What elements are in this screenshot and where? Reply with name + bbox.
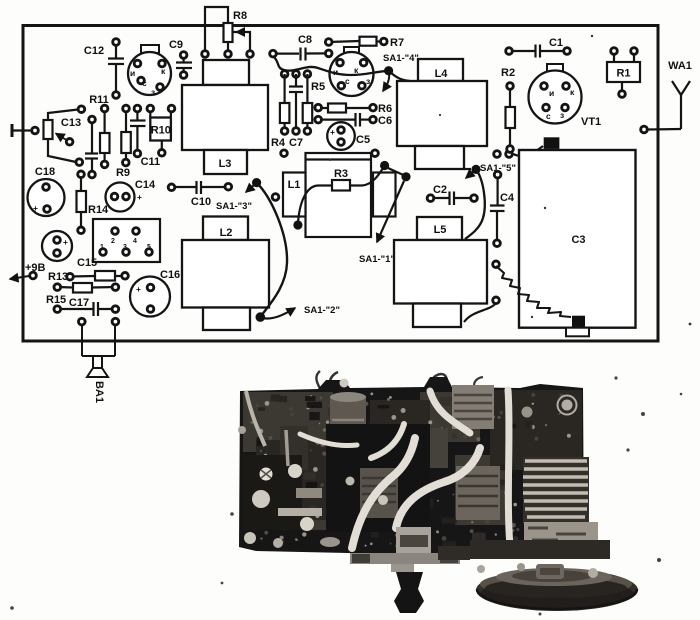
svg-text:R1: R1 bbox=[616, 68, 630, 80]
svg-text:C16: C16 bbox=[160, 269, 180, 281]
svg-text:и: и bbox=[130, 68, 135, 78]
svg-text:VT1: VT1 bbox=[581, 116, 601, 128]
svg-text:C7: C7 bbox=[289, 137, 303, 149]
svg-text:SA1-"1": SA1-"1" bbox=[359, 254, 395, 265]
svg-text:L2: L2 bbox=[220, 227, 233, 239]
svg-text:R15: R15 bbox=[46, 294, 66, 306]
svg-text:C13: C13 bbox=[61, 117, 81, 129]
svg-text:C8: C8 bbox=[298, 34, 312, 46]
svg-text:к: к bbox=[570, 87, 575, 97]
svg-text:4: 4 bbox=[133, 238, 137, 245]
svg-text:R10: R10 bbox=[151, 125, 171, 137]
svg-text:з: з bbox=[560, 110, 564, 120]
svg-text:L1: L1 bbox=[288, 179, 301, 191]
svg-text:BA1: BA1 bbox=[93, 381, 105, 403]
svg-text:R4: R4 bbox=[271, 137, 286, 149]
svg-text:C14: C14 bbox=[135, 179, 156, 191]
svg-text:C1: C1 bbox=[549, 37, 563, 49]
svg-text:5: 5 bbox=[147, 244, 151, 251]
svg-text:+: + bbox=[330, 127, 335, 137]
svg-text:C11: C11 bbox=[141, 156, 161, 168]
svg-text:C17: C17 bbox=[69, 297, 89, 309]
svg-text:к: к bbox=[161, 66, 166, 76]
svg-text:и: и bbox=[549, 88, 554, 98]
svg-text:R13: R13 bbox=[48, 271, 68, 283]
svg-text:C18: C18 bbox=[35, 166, 55, 178]
svg-text:C12: C12 bbox=[84, 45, 104, 57]
svg-text:C5: C5 bbox=[356, 134, 370, 146]
svg-text:с: с bbox=[142, 78, 147, 88]
svg-text:C10: C10 bbox=[191, 196, 211, 208]
svg-text:L4: L4 bbox=[435, 68, 449, 80]
svg-text:з: з bbox=[151, 87, 155, 97]
svg-text:+: + bbox=[33, 203, 38, 213]
svg-text:з: з bbox=[366, 76, 370, 86]
svg-text:+: + bbox=[137, 192, 142, 202]
svg-text:SA1-"4": SA1-"4" bbox=[383, 53, 419, 64]
svg-text:+: + bbox=[136, 284, 141, 294]
svg-text:1: 1 bbox=[100, 244, 104, 251]
svg-text:L5: L5 bbox=[434, 224, 447, 236]
svg-text:SA1-"3": SA1-"3" bbox=[216, 201, 252, 212]
svg-text:R5: R5 bbox=[311, 81, 325, 93]
svg-text:+: + bbox=[63, 237, 68, 247]
svg-text:R6: R6 bbox=[378, 103, 392, 115]
svg-text:с: с bbox=[345, 76, 350, 86]
svg-text:C4: C4 bbox=[500, 192, 515, 204]
svg-text:R7: R7 bbox=[390, 37, 404, 49]
svg-text:L3: L3 bbox=[219, 158, 232, 170]
svg-text:R9: R9 bbox=[116, 167, 130, 179]
svg-text:с: с bbox=[546, 111, 551, 121]
svg-text:R8: R8 bbox=[233, 10, 247, 22]
svg-text:C6: C6 bbox=[378, 115, 392, 127]
svg-text:R2: R2 bbox=[501, 67, 515, 79]
svg-text:R14: R14 bbox=[88, 204, 109, 216]
svg-text:2: 2 bbox=[111, 238, 115, 245]
svg-text:C3: C3 bbox=[571, 234, 585, 246]
svg-text:SA1-"2": SA1-"2" bbox=[304, 305, 340, 316]
svg-text:R3: R3 bbox=[334, 168, 348, 180]
svg-text:C2: C2 bbox=[433, 184, 447, 196]
svg-text:C15: C15 bbox=[77, 257, 97, 269]
svg-text:WA1: WA1 bbox=[668, 60, 692, 72]
svg-text:3: 3 bbox=[123, 244, 127, 251]
svg-text:C9: C9 bbox=[169, 39, 183, 51]
